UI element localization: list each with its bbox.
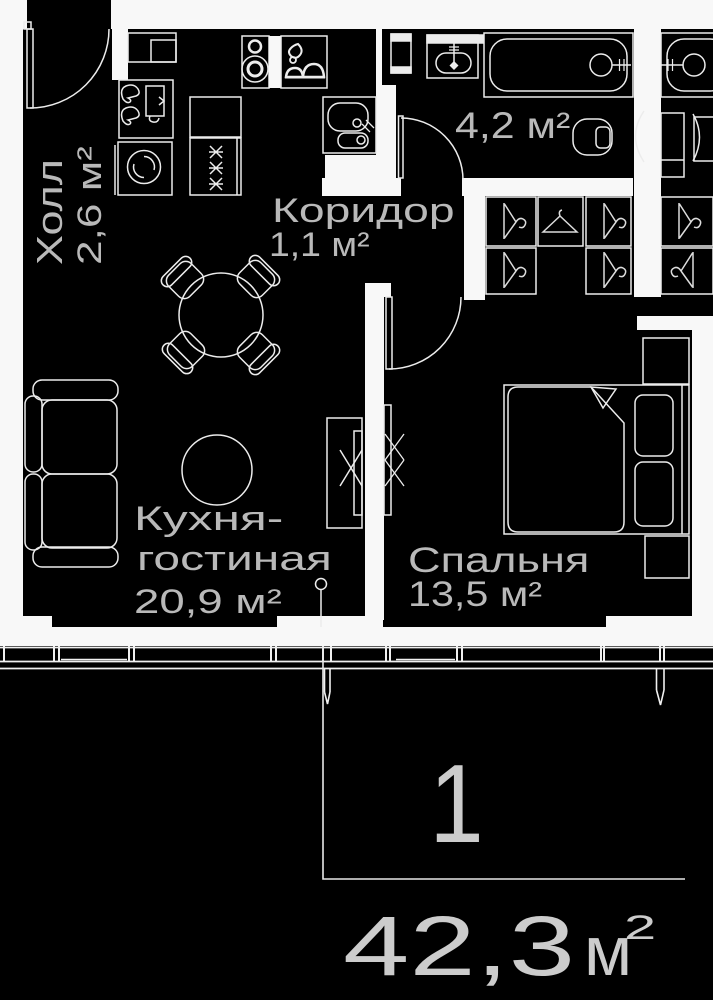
svg-text:Спальня: Спальня	[408, 540, 589, 580]
svg-text:20,9 м²: 20,9 м²	[134, 583, 282, 621]
svg-text:2,6 м²: 2,6 м²	[71, 146, 109, 265]
svg-text:4,2 м²: 4,2 м²	[455, 106, 570, 147]
svg-text:13,5 м²: 13,5 м²	[408, 575, 542, 614]
svg-text:Коридор: Коридор	[272, 191, 455, 230]
svg-text:гостиная: гостиная	[137, 539, 332, 577]
svg-text:Кухня-: Кухня-	[134, 500, 283, 538]
svg-text:42,3: 42,3	[343, 899, 575, 993]
svg-text:2: 2	[624, 909, 656, 947]
svg-text:1: 1	[429, 742, 483, 866]
svg-text:1,1 м²: 1,1 м²	[269, 226, 370, 264]
svg-text:Холл: Холл	[29, 159, 70, 265]
